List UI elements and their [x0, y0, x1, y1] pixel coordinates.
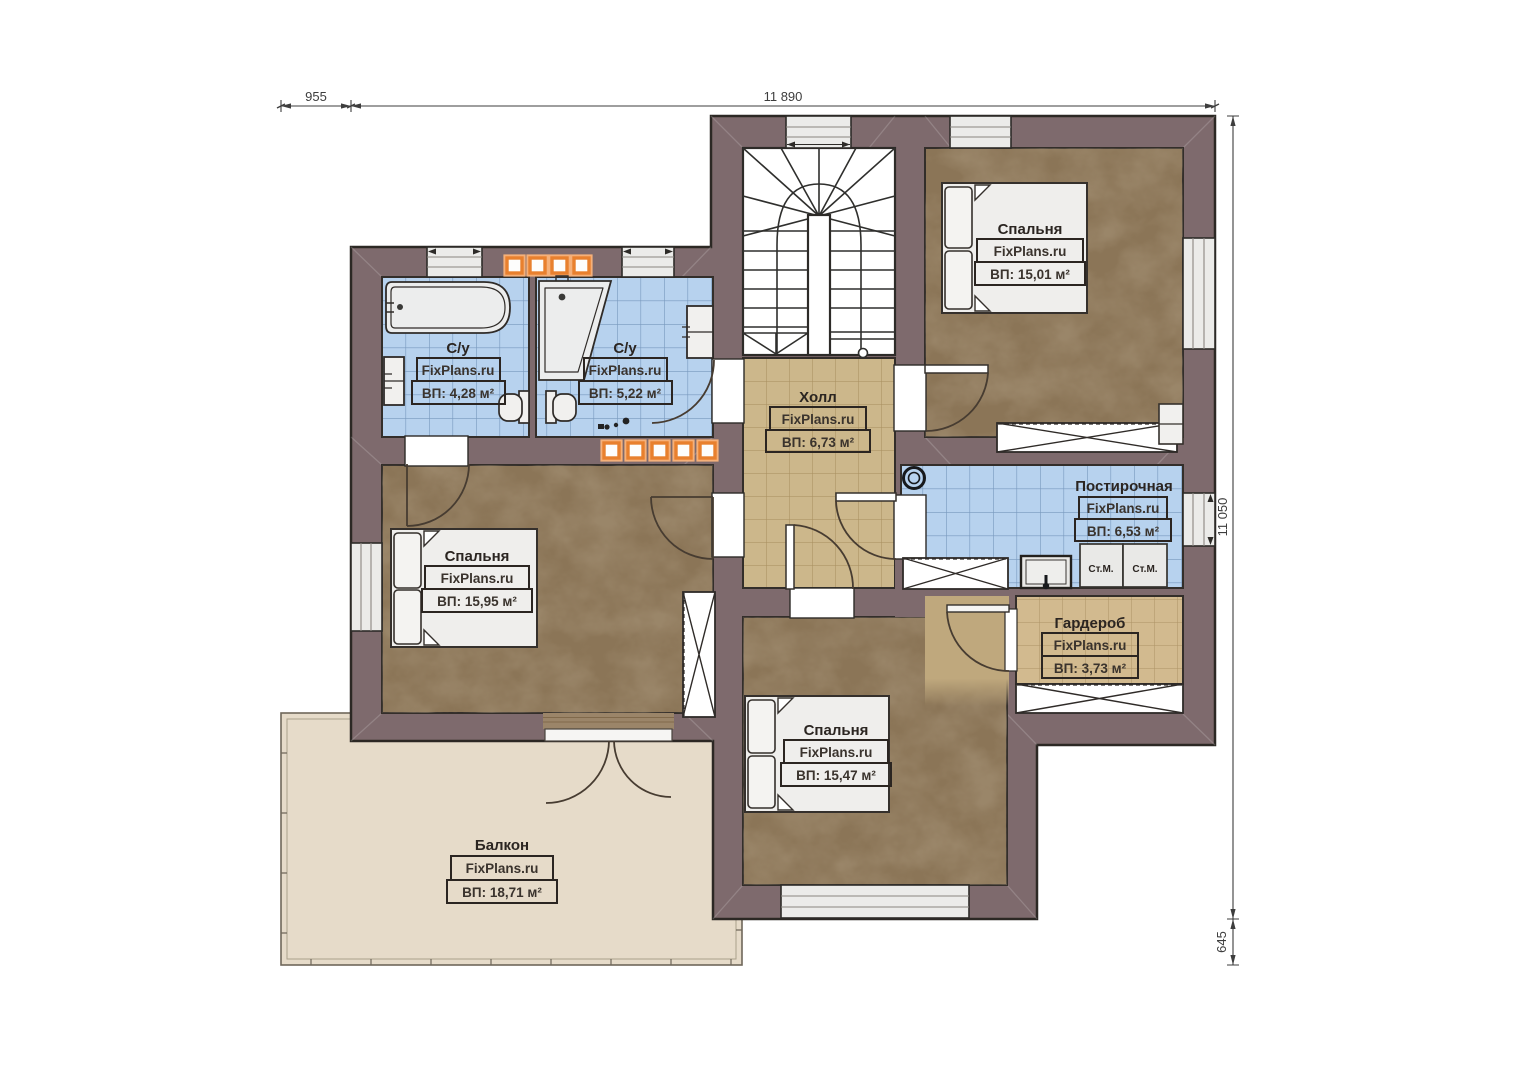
svg-text:ВП: 6,53 м²: ВП: 6,53 м²	[1087, 524, 1160, 539]
svg-text:С/у: С/у	[446, 340, 470, 357]
svg-text:645: 645	[1214, 931, 1229, 953]
svg-text:ВП: 4,28 м²: ВП: 4,28 м²	[422, 386, 495, 401]
svg-text:FixPlans.ru: FixPlans.ru	[994, 244, 1067, 259]
svg-text:ВП: 18,71 м²: ВП: 18,71 м²	[462, 885, 542, 900]
svg-text:ВП: 5,22 м²: ВП: 5,22 м²	[589, 386, 662, 401]
svg-text:FixPlans.ru: FixPlans.ru	[422, 363, 495, 378]
svg-text:Гардероб: Гардероб	[1055, 615, 1126, 632]
svg-text:FixPlans.ru: FixPlans.ru	[466, 861, 539, 876]
svg-text:FixPlans.ru: FixPlans.ru	[441, 571, 514, 586]
svg-text:Ст.М.: Ст.М.	[1088, 564, 1113, 575]
svg-text:FixPlans.ru: FixPlans.ru	[589, 363, 662, 378]
svg-text:Балкон: Балкон	[475, 837, 529, 854]
svg-text:Спальня: Спальня	[804, 722, 869, 739]
svg-text:ВП: 15,01 м²: ВП: 15,01 м²	[990, 267, 1070, 282]
svg-text:FixPlans.ru: FixPlans.ru	[782, 412, 855, 427]
svg-text:ВП: 3,73 м²: ВП: 3,73 м²	[1054, 661, 1127, 676]
svg-text:955: 955	[305, 89, 327, 104]
svg-text:С/у: С/у	[613, 340, 637, 357]
svg-text:FixPlans.ru: FixPlans.ru	[1087, 501, 1160, 516]
svg-text:Спальня: Спальня	[998, 221, 1063, 238]
svg-text:Холл: Холл	[799, 389, 837, 406]
svg-text:Спальня: Спальня	[445, 548, 510, 565]
svg-text:11 050: 11 050	[1215, 498, 1230, 537]
svg-text:ВП: 15,47 м²: ВП: 15,47 м²	[796, 768, 876, 783]
svg-text:FixPlans.ru: FixPlans.ru	[800, 745, 873, 760]
svg-text:ВП: 6,73 м²: ВП: 6,73 м²	[782, 435, 855, 450]
svg-text:11 890: 11 890	[764, 89, 803, 104]
svg-text:FixPlans.ru: FixPlans.ru	[1054, 638, 1127, 653]
svg-text:ВП: 15,95 м²: ВП: 15,95 м²	[437, 594, 517, 609]
svg-text:Ст.М.: Ст.М.	[1132, 564, 1157, 575]
svg-text:Постирочная: Постирочная	[1075, 478, 1172, 495]
